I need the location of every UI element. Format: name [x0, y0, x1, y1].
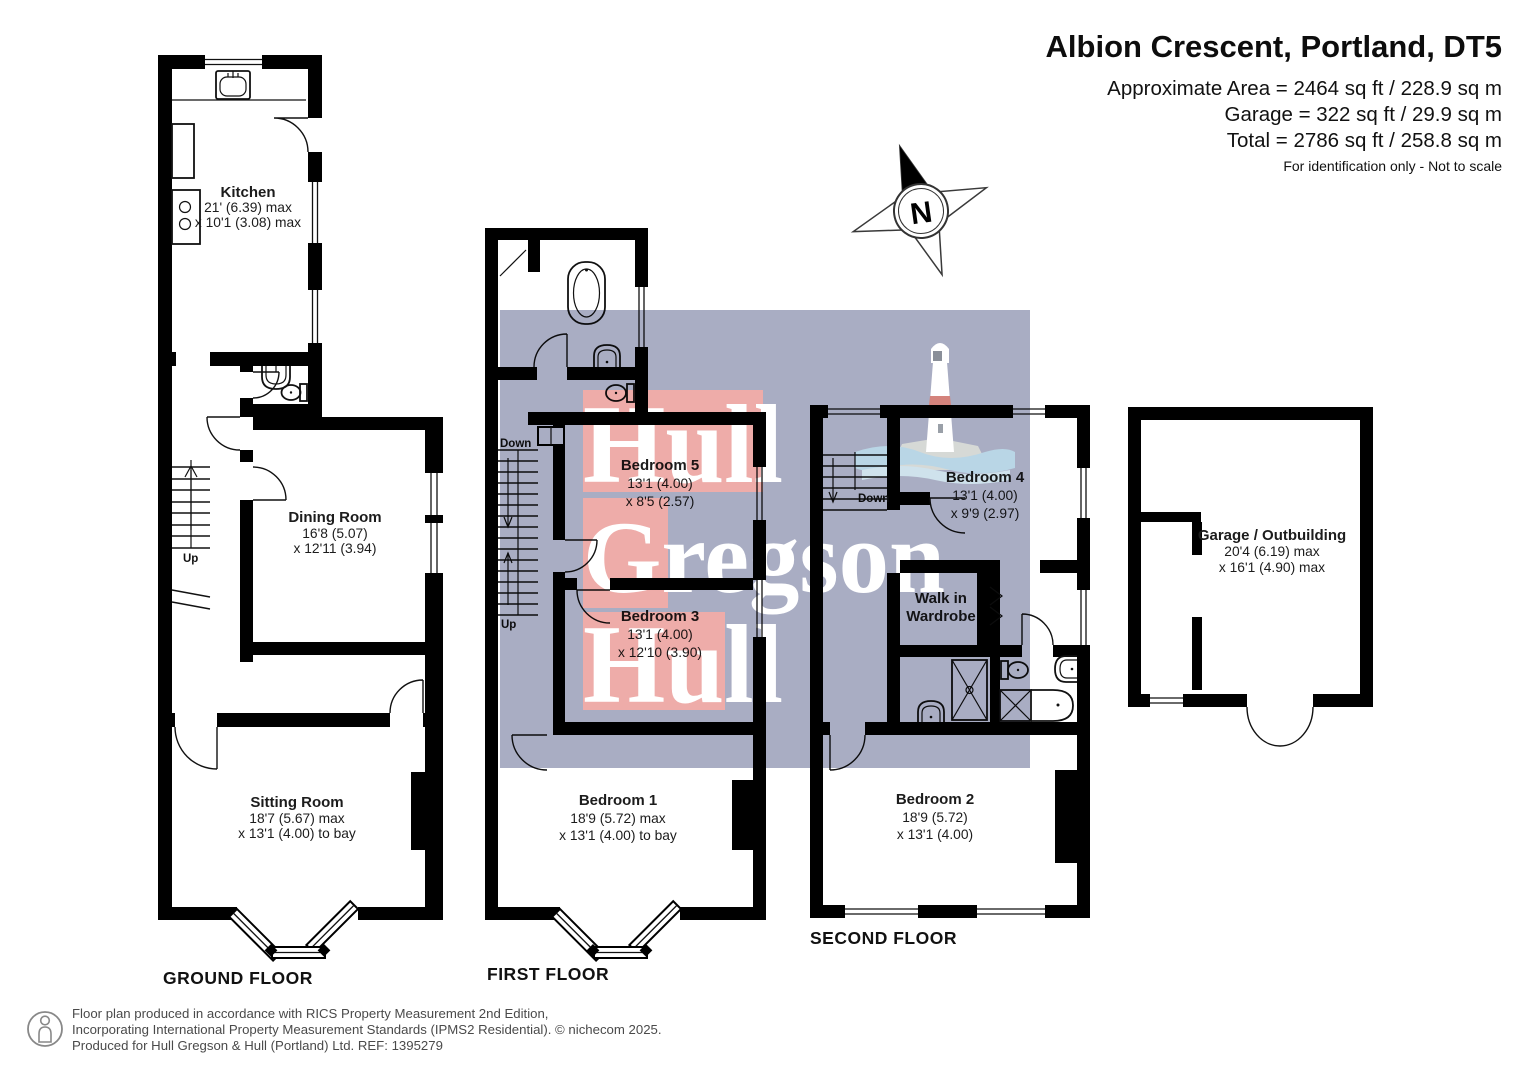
bedroom1-dim1: 18'9 (5.72) max: [570, 811, 666, 826]
dining-name: Dining Room: [288, 509, 381, 526]
page-title: Albion Crescent, Portland, DT5: [1046, 29, 1502, 64]
watermark-word-3: Hull: [583, 603, 783, 727]
ground-stairs-up-label: Up: [183, 553, 198, 565]
footer-line3: Produced for Hull Gregson & Hull (Portla…: [72, 1038, 443, 1053]
hall: [172, 366, 240, 713]
kitchen-dim1: 21' (6.39) max: [204, 200, 292, 215]
dining-windows-right: [425, 473, 443, 573]
kitchen-window-top: [205, 55, 262, 69]
garage-dim1: 20'4 (6.19) max: [1224, 544, 1320, 559]
bedroom1-dim2: x 13'1 (4.00) to bay: [559, 828, 677, 843]
sitting-dim1: 18'7 (5.67) max: [249, 811, 345, 826]
garage-dim2: x 16'1 (4.90) max: [1219, 560, 1325, 575]
watermark-word-1: Hull: [583, 383, 783, 507]
watermark-word-2: Gregson: [583, 501, 945, 615]
garage-area-line: Garage = 322 sq ft / 29.9 sq m: [1225, 103, 1502, 126]
garage-double-door: [1247, 707, 1313, 746]
scale-disclaimer: For identification only - Not to scale: [1283, 158, 1502, 174]
bedroom2-dim2: x 13'1 (4.00): [897, 827, 973, 842]
kitchen-dim2: x 10'1 (3.08) max: [195, 215, 301, 230]
second-floor-label: SECOND FLOOR: [810, 928, 957, 948]
dining-dim1: 16'8 (5.07): [302, 526, 368, 541]
garage-plan: Garage / Outbuilding 20'4 (6.19) max x 1…: [1128, 407, 1373, 746]
person-icon: [28, 1012, 62, 1046]
ground-floor-plan: Up Kitchen 21' (6.39) max x 10'1 (3.08) …: [158, 55, 443, 988]
dining-dim2: x 12'11 (3.94): [294, 541, 377, 556]
floorplan-page: Albion Crescent, Portland, DT5 Approxima…: [0, 0, 1527, 1080]
footer-line1: Floor plan produced in accordance with R…: [72, 1006, 548, 1021]
compass-icon: N: [842, 135, 997, 286]
sitting-dim2: x 13'1 (4.00) to bay: [238, 826, 356, 841]
garage-name: Garage / Outbuilding: [1198, 527, 1346, 544]
sitting-name: Sitting Room: [250, 794, 343, 811]
kitchen-name: Kitchen: [220, 184, 275, 201]
approx-area-line: Approximate Area = 2464 sq ft / 228.9 sq…: [1107, 77, 1502, 100]
header: Albion Crescent, Portland, DT5 Approxima…: [1046, 29, 1503, 174]
bedroom2-name: Bedroom 2: [896, 791, 974, 808]
ground-floor-label: GROUND FLOOR: [163, 968, 313, 988]
bedroom2-dim1: 18'9 (5.72): [902, 810, 968, 825]
bedroom2-chimney: [1055, 770, 1077, 863]
first-floor-label: FIRST FLOOR: [487, 964, 609, 984]
compass-north-label: N: [908, 196, 934, 232]
bedroom1-chimney: [732, 780, 753, 850]
sitting-chimney: [411, 772, 442, 850]
bedroom1-name: Bedroom 1: [579, 792, 657, 809]
watermark: Hull Gregson Hull: [500, 310, 1030, 768]
total-area-line: Total = 2786 sq ft / 258.8 sq m: [1227, 129, 1502, 152]
footer: Floor plan produced in accordance with R…: [28, 1006, 662, 1053]
footer-line2: Incorporating International Property Mea…: [72, 1022, 662, 1037]
